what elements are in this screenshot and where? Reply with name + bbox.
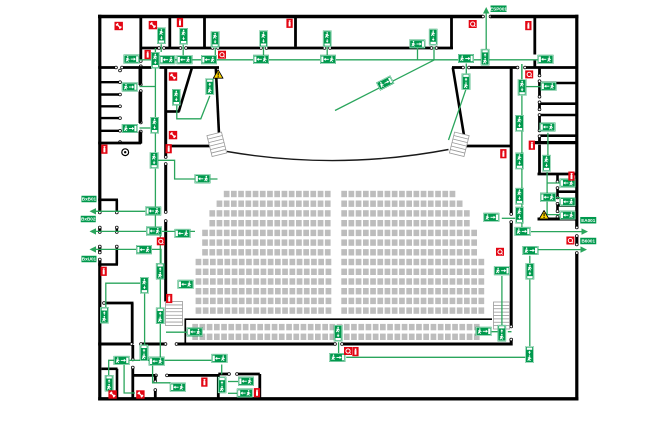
svg-text:ESP001: ESP001 [490,6,507,11]
svg-text:BxU01: BxU01 [82,257,97,262]
svg-text:BxB01: BxB01 [82,197,97,202]
svg-text:B6001: B6001 [581,239,595,244]
svg-text:EA001: EA001 [581,218,595,223]
svg-text:BxB02: BxB02 [81,217,96,222]
